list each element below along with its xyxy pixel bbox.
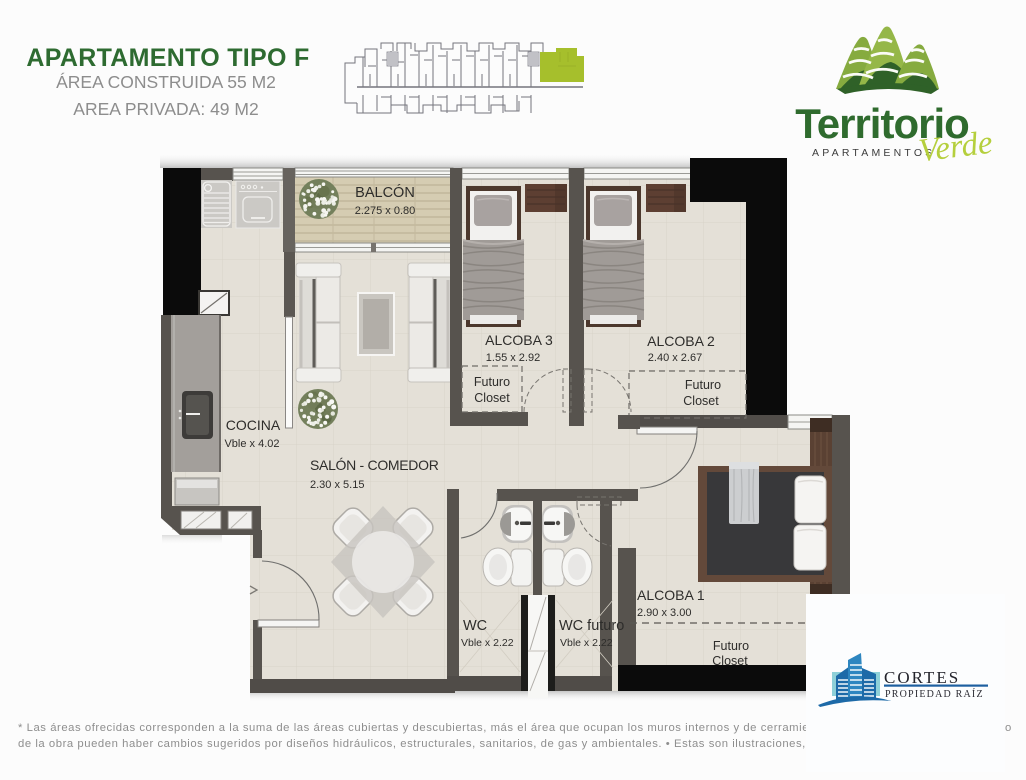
svg-text:PROPIEDAD RAÍZ: PROPIEDAD RAÍZ (885, 688, 984, 700)
svg-text:Vble x 2.22: Vble x 2.22 (560, 637, 613, 649)
svg-text:Closet: Closet (474, 391, 510, 405)
svg-text:CORTES: CORTES (884, 668, 960, 687)
svg-text:SALÓN - COMEDOR: SALÓN - COMEDOR (310, 457, 439, 473)
svg-text:Verde: Verde (917, 125, 995, 170)
svg-text:Vble x 4.02: Vble x 4.02 (224, 438, 279, 450)
svg-text:2.90 x 3.00: 2.90 x 3.00 (637, 607, 691, 619)
svg-text:1.55 x 2.92: 1.55 x 2.92 (486, 352, 540, 364)
svg-text:BALCÓN: BALCÓN (355, 184, 415, 201)
svg-text:Vble x 2.22: Vble x 2.22 (461, 637, 514, 649)
svg-text:COCINA: COCINA (226, 417, 281, 433)
svg-text:ALCOBA 1: ALCOBA 1 (637, 587, 705, 603)
svg-text:Futuro: Futuro (713, 639, 749, 653)
svg-text:ALCOBA 2: ALCOBA 2 (647, 333, 715, 349)
svg-text:WC futuro: WC futuro (559, 618, 624, 634)
svg-text:APARTAMENTOS: APARTAMENTOS (812, 147, 935, 159)
svg-text:Closet: Closet (683, 394, 719, 408)
svg-text:2.40 x 2.67: 2.40 x 2.67 (648, 352, 702, 364)
svg-text:Closet: Closet (712, 654, 748, 668)
svg-text:Futuro: Futuro (685, 378, 721, 392)
svg-text:WC: WC (463, 618, 487, 634)
svg-text:Futuro: Futuro (474, 375, 510, 389)
svg-text:ALCOBA 3: ALCOBA 3 (485, 332, 553, 348)
svg-text:2.30 x 5.15: 2.30 x 5.15 (310, 479, 364, 491)
svg-text:2.275 x 0.80: 2.275 x 0.80 (355, 205, 416, 217)
